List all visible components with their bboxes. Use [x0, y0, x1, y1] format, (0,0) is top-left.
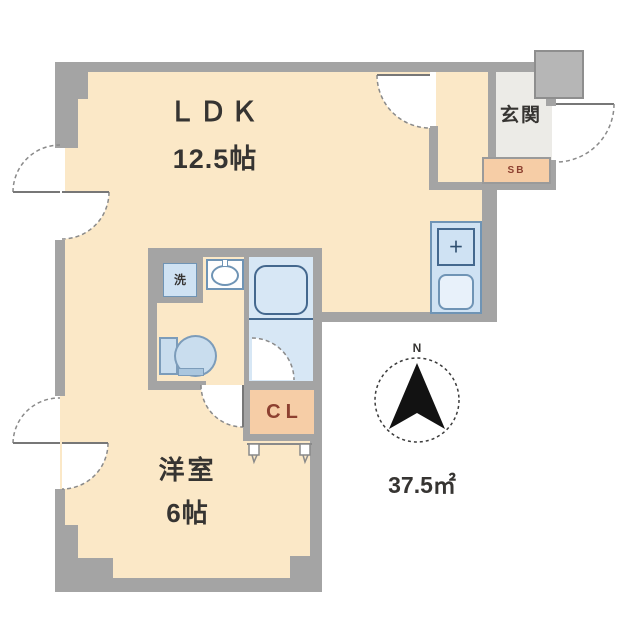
washbasin-bowl: [211, 265, 239, 286]
compass-north-label: N: [403, 342, 431, 354]
bathtub: [254, 265, 308, 315]
wall-left-middle: [55, 240, 65, 396]
shoe-box: SB: [482, 157, 551, 184]
bathroom-divider: [249, 318, 313, 320]
total-area-label: 37.5㎡: [372, 474, 472, 497]
closet: CL: [250, 390, 314, 434]
western-room-size-label: 6帖: [120, 500, 255, 526]
entrance-pillar: [534, 50, 584, 99]
wall-right-kitchen: [482, 182, 497, 322]
toilet-base: [178, 368, 204, 376]
wall-bottom: [55, 578, 322, 592]
washbasin-tap: [222, 259, 228, 267]
entrance-label: 玄関: [490, 106, 552, 125]
wall-top: [55, 62, 556, 72]
stove: ＋: [437, 228, 475, 266]
stove-burner-icon: ＋: [448, 240, 463, 255]
kitchen-sink: [438, 274, 474, 310]
western-room-label: 洋室: [120, 457, 255, 483]
wall-right-western-room: [310, 438, 322, 580]
washroom-door-gap: [206, 379, 244, 392]
ldk-size-label: 12.5帖: [130, 146, 300, 173]
floor-plan: 洗 CL ＋ SB: [0, 0, 630, 630]
wall-ldk-hallway: [429, 126, 438, 190]
ldk-label: ＬＤＫ: [130, 99, 300, 126]
washing-machine-label: 洗: [174, 274, 186, 286]
shoe-box-label: SB: [508, 166, 526, 176]
closet-label: CL: [261, 402, 303, 422]
wall-left-upper: [55, 62, 65, 148]
washing-machine: 洗: [163, 263, 197, 297]
